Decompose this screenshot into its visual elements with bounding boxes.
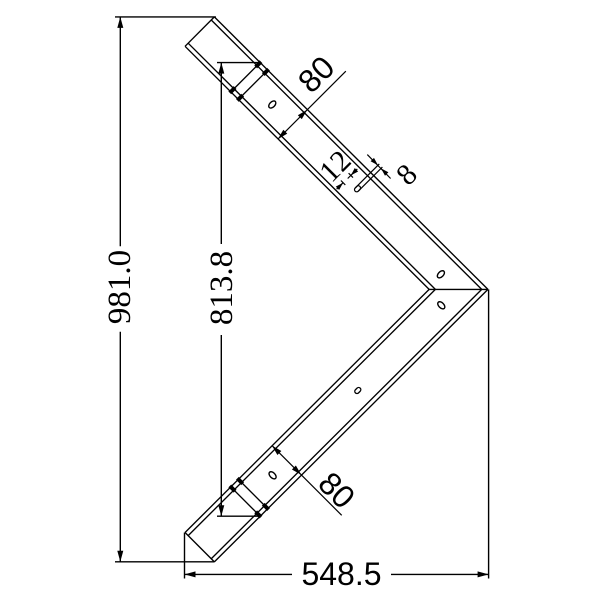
svg-text:548.5: 548.5 (301, 556, 381, 592)
svg-text:80: 80 (311, 465, 362, 516)
svg-text:813.8: 813.8 (204, 251, 240, 325)
svg-text:12: 12 (313, 144, 358, 189)
svg-text:8: 8 (390, 158, 424, 192)
svg-text:981.0: 981.0 (102, 250, 138, 324)
svg-text:80: 80 (291, 49, 342, 100)
